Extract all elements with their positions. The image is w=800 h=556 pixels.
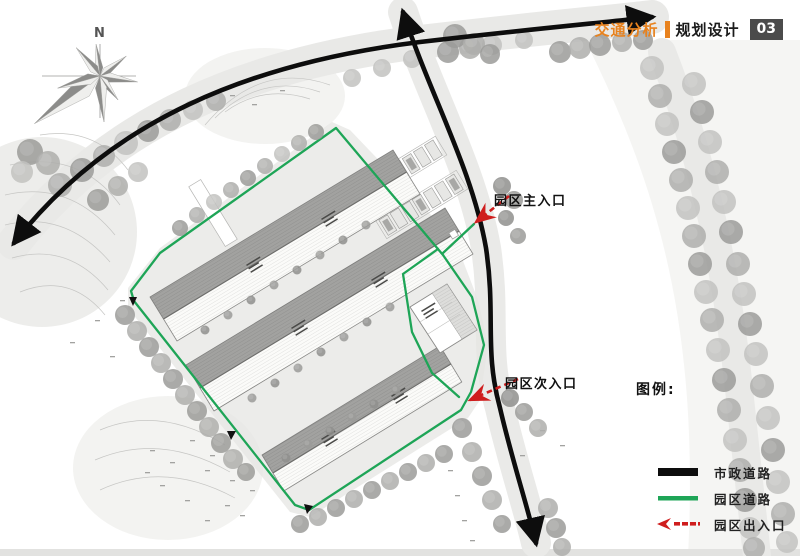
page-title: 交通分析 规划设计 03 — [594, 19, 783, 40]
legend-rows: 市政道路 园区道路 园区出入口 — [656, 459, 787, 537]
compass-north-label: N — [94, 26, 106, 41]
title-secondary: 规划设计 — [676, 19, 740, 40]
title-divider — [665, 21, 670, 38]
compass-rose — [34, 44, 137, 124]
legend-item-park-entrance: 园区出入口 — [656, 511, 787, 537]
legend-label: 园区道路 — [714, 489, 772, 508]
traffic-analysis-plan: N 园区主入口 园区次入口 交通分析 规划设计 03 图例: 市政道路 园区道路 — [0, 0, 800, 556]
legend-label: 市政道路 — [714, 463, 772, 482]
municipal-road-swatch — [656, 466, 700, 478]
secondary-entrance-label: 园区次入口 — [505, 373, 578, 392]
legend-item-park-road: 园区道路 — [656, 485, 787, 511]
main-entrance-label: 园区主入口 — [494, 190, 567, 209]
legend-heading: 图例: — [636, 379, 676, 399]
legend: 图例: 市政道路 园区道路 园区出 — [636, 379, 676, 399]
title-primary: 交通分析 — [594, 19, 658, 40]
park-road-swatch — [656, 492, 700, 504]
park-entrance-swatch — [656, 517, 700, 531]
legend-item-municipal-road: 市政道路 — [656, 459, 787, 485]
legend-label: 园区出入口 — [714, 515, 787, 534]
page-number-badge: 03 — [750, 19, 783, 40]
